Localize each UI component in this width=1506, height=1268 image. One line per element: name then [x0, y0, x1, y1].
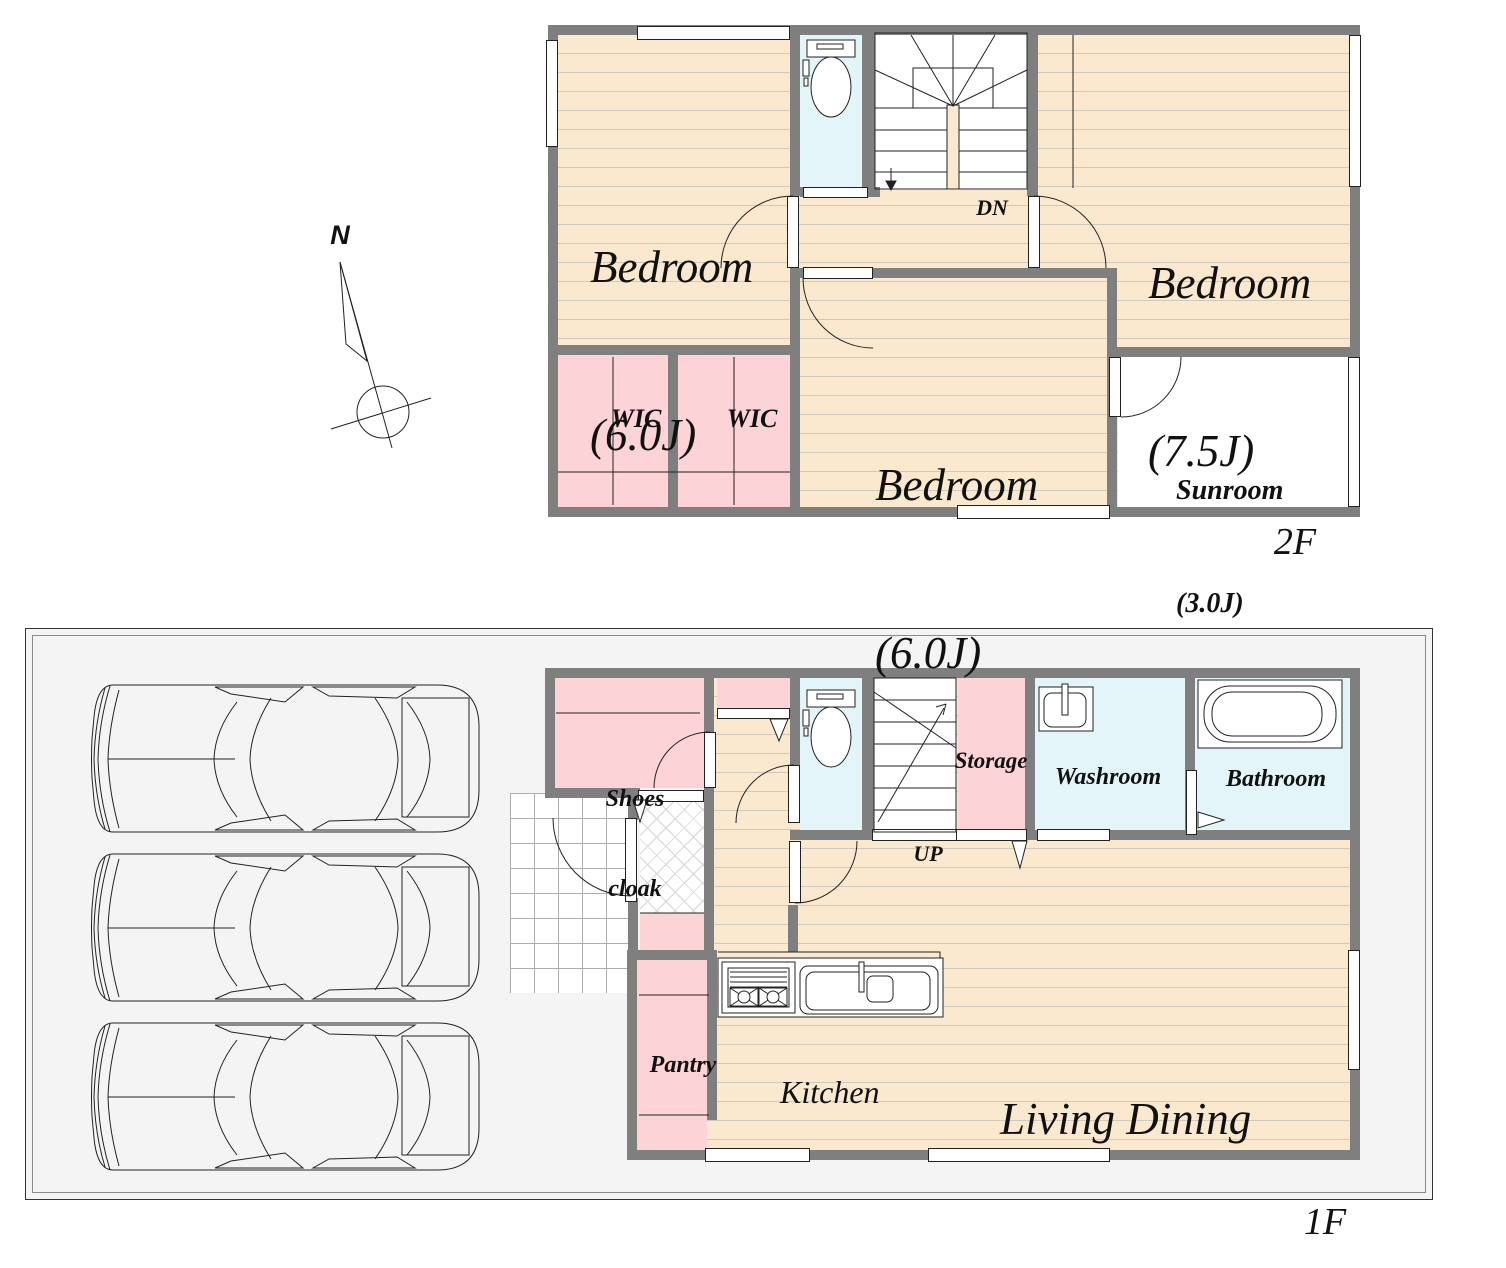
wall [704, 678, 714, 732]
wall [788, 905, 798, 952]
wall [707, 960, 717, 1120]
room-label-bedroom-s: Bedroom (6.0J) [875, 344, 1038, 794]
room-size: (LDK 15.3J) [1000, 1259, 1251, 1268]
direction-text: DN [952, 194, 1032, 223]
window [1348, 950, 1360, 1070]
room-name: Kitchen [780, 1072, 880, 1114]
room-name: Storage [946, 746, 1036, 776]
room-name: Sunroom [1176, 472, 1283, 510]
room-label-pantry: Pantry [633, 1050, 733, 1081]
closet-opening [717, 708, 790, 719]
door-leaf [787, 196, 799, 268]
room-name: WIC [586, 402, 686, 436]
door-leaf [788, 765, 800, 823]
2f-toilet-room [800, 35, 862, 188]
room-name-line2: cloak [575, 874, 695, 904]
window [637, 26, 790, 40]
door-leaf [803, 267, 873, 279]
room-label-living-dining: Living Dining (LDK 15.3J) [1000, 978, 1251, 1268]
floor-text: 2F [1245, 518, 1345, 567]
door-leaf [1109, 357, 1121, 417]
room-size: (6.0J) [875, 625, 1038, 681]
room-name: Bathroom [1216, 764, 1336, 795]
floor-plan-canvas: Bedroom (6.0J) Bedroom (7.5J) Bedroom (6… [0, 0, 1506, 1268]
room-name: Living Dining [1000, 1091, 1251, 1147]
door-leaf [789, 841, 801, 903]
window [1349, 35, 1361, 187]
wall [704, 788, 714, 950]
window [705, 1148, 810, 1162]
room-name: WIC [702, 402, 802, 436]
wall [790, 35, 800, 196]
room-label-wic-right: WIC [702, 402, 802, 436]
room-label-shoes-cloak: Shoes cloak [575, 724, 695, 964]
1f-washroom-room [1035, 678, 1185, 830]
1f-hall-closet [717, 678, 790, 708]
wall [1027, 35, 1038, 196]
north-text: N [320, 218, 360, 253]
wall [790, 268, 800, 507]
stairs-direction-label-2f: DN [952, 194, 1032, 223]
wall [862, 35, 875, 188]
room-label-bedroom-nw: Bedroom (6.0J) [590, 126, 753, 576]
room-label-wic-left: WIC [586, 402, 686, 436]
room-label-kitchen: Kitchen [780, 1072, 880, 1114]
room-label-washroom: Washroom [1048, 762, 1168, 793]
wall [545, 668, 555, 798]
room-label-bathroom: Bathroom [1216, 764, 1336, 795]
room-label-storage: Storage [946, 746, 1036, 776]
floor-label-1f: 1F [1275, 1198, 1375, 1247]
wall [1350, 668, 1360, 1160]
room-name-line1: Shoes [575, 784, 695, 814]
door-leaf [1186, 770, 1197, 835]
floor-text: 1F [1275, 1198, 1375, 1247]
room-name: Pantry [633, 1050, 733, 1081]
1f-bathroom-room [1195, 678, 1350, 830]
stairs-direction-label-1f: UP [888, 840, 968, 869]
north-label: N [320, 218, 360, 253]
1f-toilet-room [800, 678, 862, 830]
wall [790, 678, 800, 768]
room-size: (3.0J) [1176, 585, 1283, 623]
floor-label-2f: 2F [1245, 518, 1345, 567]
2f-stairwell [875, 33, 1027, 190]
opening [1037, 829, 1110, 841]
room-name: Bedroom [590, 239, 753, 295]
wall [862, 678, 874, 830]
sliding-door [803, 187, 868, 198]
door-leaf [704, 732, 716, 788]
room-name: Bedroom [875, 457, 1038, 513]
room-name: Bedroom [1148, 255, 1311, 311]
direction-text: UP [888, 840, 968, 869]
window [546, 40, 558, 147]
room-name: Washroom [1048, 762, 1168, 793]
window [1348, 357, 1360, 507]
compass-icon [331, 262, 431, 448]
